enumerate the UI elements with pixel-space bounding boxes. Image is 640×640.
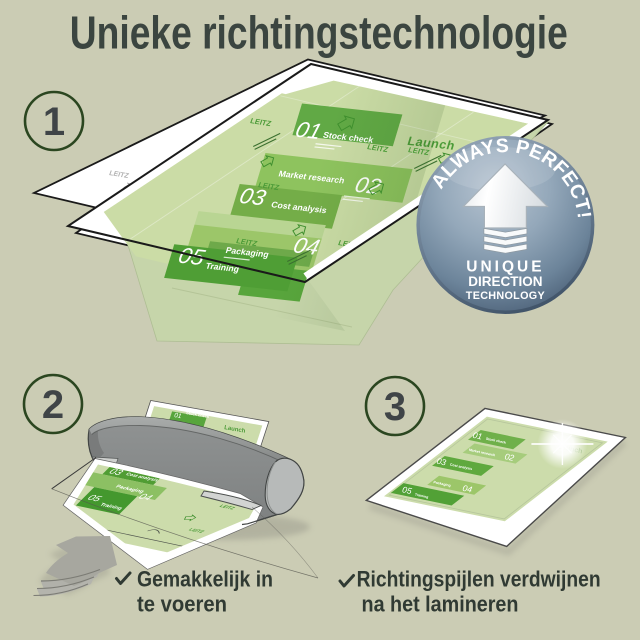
svg-text:Richtingspijlen verdwijnen: Richtingspijlen verdwijnen bbox=[357, 567, 601, 592]
svg-text:3: 3 bbox=[384, 385, 406, 429]
svg-text:te voeren: te voeren bbox=[137, 592, 227, 617]
svg-text:TECHNOLOGY: TECHNOLOGY bbox=[466, 290, 546, 302]
svg-text:Unieke richtingstechnologie: Unieke richtingstechnologie bbox=[70, 7, 568, 59]
svg-text:1: 1 bbox=[43, 100, 65, 144]
svg-text:na het lamineren: na het lamineren bbox=[362, 592, 519, 617]
svg-text:2: 2 bbox=[42, 383, 64, 427]
svg-text:Gemakkelijk in: Gemakkelijk in bbox=[137, 567, 273, 592]
svg-text:DIRECTION: DIRECTION bbox=[468, 274, 542, 289]
svg-text:UNIQUE: UNIQUE bbox=[466, 259, 544, 276]
